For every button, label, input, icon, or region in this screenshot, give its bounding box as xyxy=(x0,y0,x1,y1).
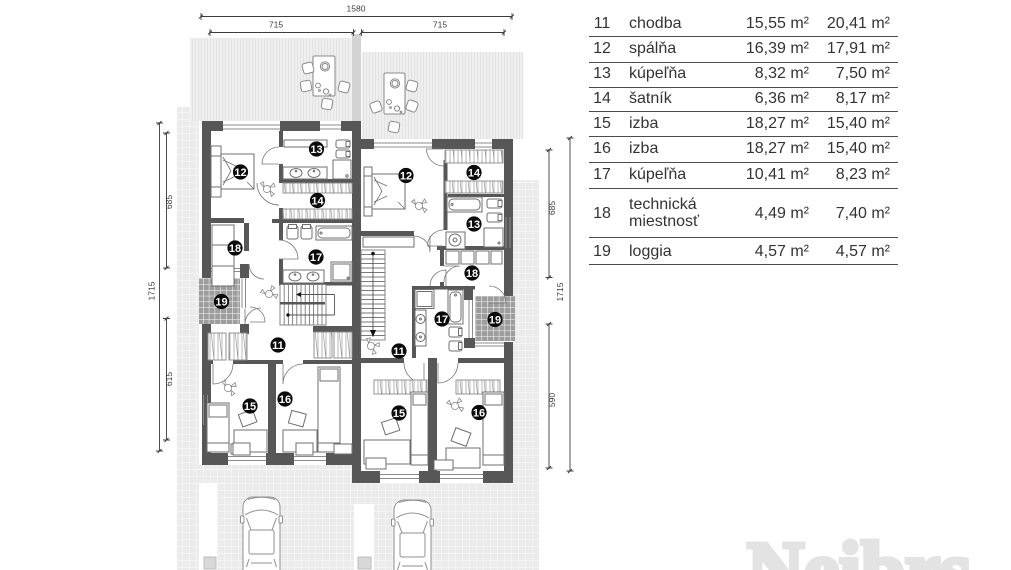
svg-text:715: 715 xyxy=(269,20,283,30)
svg-text:19: 19 xyxy=(215,296,227,308)
svg-text:16: 16 xyxy=(473,407,485,419)
svg-text:18: 18 xyxy=(229,243,241,255)
svg-text:13: 13 xyxy=(310,144,322,156)
svg-text:12: 12 xyxy=(234,167,246,179)
svg-text:685: 685 xyxy=(164,195,174,209)
svg-text:12: 12 xyxy=(400,170,412,182)
svg-text:17: 17 xyxy=(310,252,322,264)
svg-text:1580: 1580 xyxy=(347,4,366,14)
svg-text:715: 715 xyxy=(433,20,447,30)
svg-text:11: 11 xyxy=(393,346,405,358)
svg-text:11: 11 xyxy=(272,340,284,352)
svg-text:590: 590 xyxy=(547,393,557,407)
svg-text:1715: 1715 xyxy=(147,281,157,300)
svg-text:15: 15 xyxy=(393,408,405,420)
svg-text:19: 19 xyxy=(489,314,501,326)
svg-text:1715: 1715 xyxy=(555,282,565,301)
svg-text:685: 685 xyxy=(547,201,557,215)
svg-text:14: 14 xyxy=(468,167,481,179)
svg-text:615: 615 xyxy=(164,372,174,386)
svg-text:18: 18 xyxy=(466,268,478,280)
svg-text:17: 17 xyxy=(436,314,448,326)
svg-text:16: 16 xyxy=(279,394,291,406)
svg-text:14: 14 xyxy=(311,195,324,207)
svg-text:15: 15 xyxy=(244,401,256,413)
svg-text:13: 13 xyxy=(468,219,480,231)
